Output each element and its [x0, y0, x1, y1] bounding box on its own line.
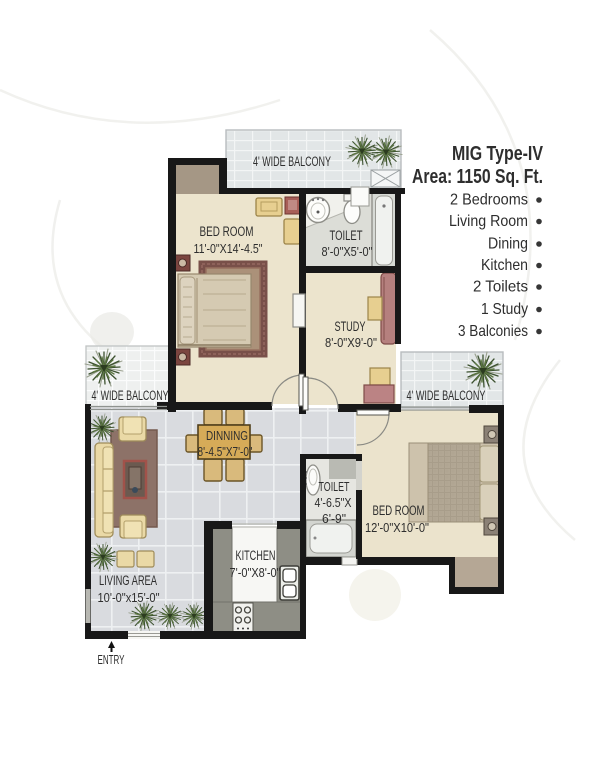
svg-text:1 Study: 1 Study [481, 301, 528, 318]
svg-text:4' WIDE BALCONY: 4' WIDE BALCONY [92, 388, 169, 403]
svg-text:TOILET: TOILET [330, 228, 363, 243]
svg-text:4' WIDE BALCONY: 4' WIDE BALCONY [407, 388, 486, 403]
svg-text:11'-0"X14'-4.5": 11'-0"X14'-4.5" [194, 241, 263, 256]
svg-text:8'-4.5"X7'-0": 8'-4.5"X7'-0" [198, 445, 253, 459]
svg-text:Living Room: Living Room [449, 213, 528, 230]
svg-text:BED ROOM: BED ROOM [200, 224, 254, 239]
svg-text:4' WIDE BALCONY: 4' WIDE BALCONY [253, 154, 331, 169]
svg-text:LIVING AREA: LIVING AREA [99, 573, 157, 588]
svg-text:2 Toilets: 2 Toilets [473, 279, 528, 296]
svg-text:10'-0"x15'-0": 10'-0"x15'-0" [98, 590, 160, 605]
svg-text:DINNING: DINNING [206, 429, 248, 443]
svg-text:12'-0"X10'-0": 12'-0"X10'-0" [365, 520, 429, 535]
svg-text:Kitchen: Kitchen [481, 257, 528, 274]
svg-text:KITCHEN: KITCHEN [236, 548, 276, 563]
svg-text:6'-9": 6'-9" [322, 512, 346, 526]
svg-text:2 Bedrooms: 2 Bedrooms [450, 192, 528, 209]
svg-text:7'-0"X8'-0": 7'-0"X8'-0" [230, 565, 281, 580]
svg-text:4'-6.5"X: 4'-6.5"X [315, 496, 353, 510]
svg-text:Dining: Dining [488, 236, 528, 253]
svg-text:8'-0"X5'-0": 8'-0"X5'-0" [322, 244, 373, 259]
svg-text:ENTRY: ENTRY [98, 653, 125, 667]
svg-text:TOILET: TOILET [319, 480, 350, 494]
svg-text:STUDY: STUDY [335, 319, 366, 334]
svg-text:Area: 1150 Sq. Ft.: Area: 1150 Sq. Ft. [412, 166, 543, 188]
svg-text:8'-0"X9'-0": 8'-0"X9'-0" [325, 335, 377, 350]
svg-text:3 Balconies: 3 Balconies [458, 323, 528, 340]
svg-text:MIG Type-IV: MIG Type-IV [452, 143, 544, 165]
svg-text:BED ROOM: BED ROOM [373, 503, 425, 518]
